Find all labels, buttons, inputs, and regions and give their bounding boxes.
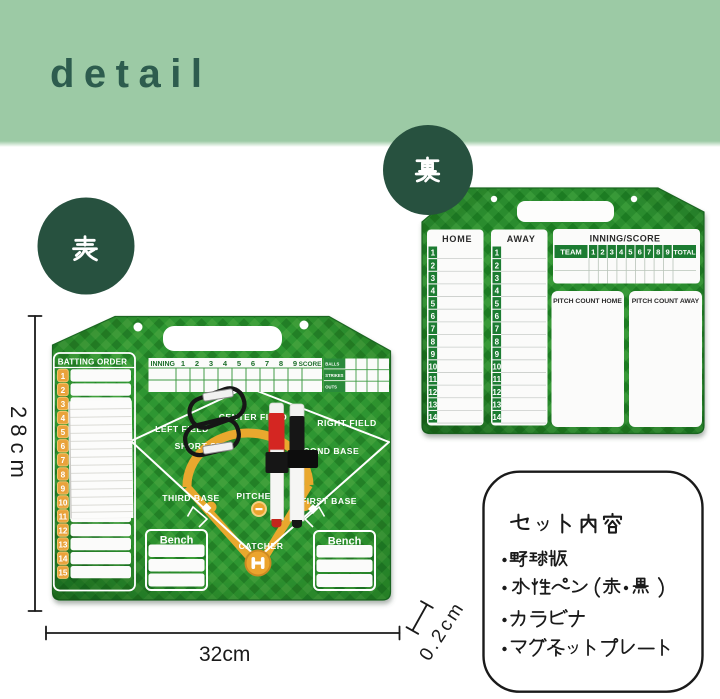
svg-text:THIRD BASE: THIRD BASE	[162, 493, 220, 503]
svg-text:4: 4	[431, 287, 436, 296]
svg-text:9: 9	[495, 350, 500, 359]
svg-text:13: 13	[428, 401, 437, 410]
svg-text:11: 11	[493, 375, 502, 384]
svg-text:7: 7	[265, 359, 269, 368]
svg-text:2: 2	[195, 359, 199, 368]
svg-text:6: 6	[251, 359, 255, 368]
svg-text:2: 2	[600, 248, 604, 257]
svg-text:STRIKES: STRIKES	[325, 373, 343, 378]
svg-text:FIRST BASE: FIRST BASE	[301, 496, 357, 506]
svg-text:1: 1	[431, 249, 436, 258]
svg-text:6: 6	[638, 248, 642, 257]
svg-text:1: 1	[495, 249, 500, 258]
svg-text:8: 8	[431, 337, 436, 346]
svg-text:8: 8	[656, 248, 660, 257]
svg-text:11: 11	[59, 512, 68, 521]
svg-text:6: 6	[61, 442, 66, 451]
svg-text:BALLS: BALLS	[325, 362, 339, 367]
svg-text:32cm: 32cm	[199, 643, 250, 666]
svg-text:7: 7	[61, 456, 66, 465]
svg-text:10: 10	[492, 363, 501, 372]
svg-text:8: 8	[279, 359, 283, 368]
svg-text:10: 10	[428, 363, 437, 372]
svg-text:2: 2	[431, 261, 436, 270]
svg-text:10: 10	[58, 498, 68, 507]
svg-text:7: 7	[495, 325, 500, 334]
svg-text:CATCHER: CATCHER	[239, 541, 284, 551]
svg-text:8: 8	[495, 337, 500, 346]
svg-text:3: 3	[431, 274, 436, 283]
svg-text:13: 13	[492, 401, 501, 410]
svg-text:5: 5	[495, 299, 500, 308]
svg-text:7: 7	[647, 248, 651, 257]
svg-text:14: 14	[58, 555, 68, 564]
svg-text:12: 12	[492, 388, 501, 397]
svg-text:BATTING ORDER: BATTING ORDER	[58, 358, 127, 367]
svg-text:1: 1	[61, 372, 66, 381]
svg-text:3: 3	[610, 248, 614, 257]
svg-text:9: 9	[665, 248, 669, 257]
svg-text:OUTS: OUTS	[325, 385, 337, 390]
svg-text:PITCH COUNT AWAY: PITCH COUNT AWAY	[632, 298, 700, 305]
svg-text:15: 15	[58, 569, 68, 578]
svg-text:TEAM: TEAM	[560, 248, 582, 257]
svg-text:3: 3	[209, 359, 213, 368]
svg-text:detail: detail	[50, 52, 211, 96]
svg-text:INNING/SCORE: INNING/SCORE	[590, 234, 661, 244]
svg-text:9: 9	[61, 484, 66, 493]
svg-text:13: 13	[58, 541, 68, 550]
svg-text:14: 14	[428, 413, 437, 422]
svg-text:9: 9	[293, 359, 297, 368]
svg-text:SCORE: SCORE	[299, 361, 322, 368]
svg-text:RIGHT FIELD: RIGHT FIELD	[317, 418, 376, 428]
svg-text:3: 3	[495, 274, 500, 283]
svg-text:4: 4	[61, 414, 66, 423]
svg-text:4: 4	[495, 287, 500, 296]
svg-text:14: 14	[492, 413, 501, 422]
svg-text:8: 8	[61, 470, 66, 479]
svg-text:11: 11	[429, 375, 438, 384]
svg-text:AWAY: AWAY	[507, 234, 536, 244]
svg-text:2: 2	[495, 261, 500, 270]
svg-text:PITCH COUNT HOME: PITCH COUNT HOME	[553, 298, 622, 305]
svg-text:12: 12	[58, 527, 68, 536]
svg-text:2: 2	[61, 386, 66, 395]
svg-text:HOME: HOME	[442, 234, 472, 244]
svg-text:5: 5	[61, 428, 66, 437]
svg-text:12: 12	[428, 388, 437, 397]
svg-text:6: 6	[431, 312, 436, 321]
svg-text:INNING: INNING	[151, 361, 176, 368]
svg-text:7: 7	[431, 325, 436, 334]
svg-text:9: 9	[431, 350, 436, 359]
svg-text:3: 3	[61, 400, 66, 409]
svg-text:TOTAL: TOTAL	[673, 250, 695, 257]
svg-text:5: 5	[431, 299, 436, 308]
svg-text:6: 6	[495, 312, 500, 321]
svg-text:28cm: 28cm	[6, 406, 31, 484]
